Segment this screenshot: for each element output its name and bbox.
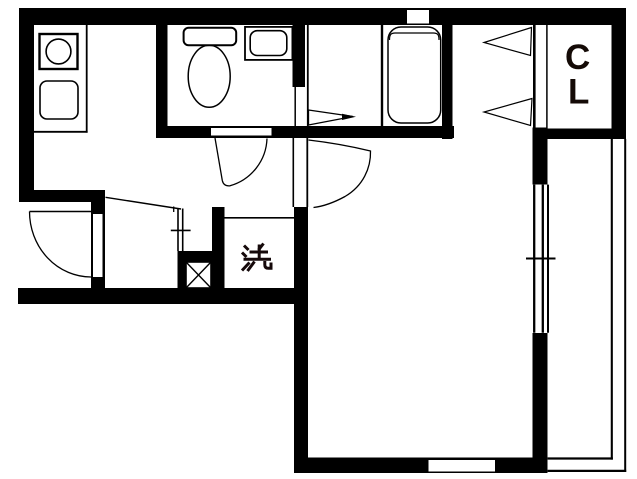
svg-text:C: C <box>565 38 590 77</box>
svg-text:L: L <box>568 73 589 112</box>
